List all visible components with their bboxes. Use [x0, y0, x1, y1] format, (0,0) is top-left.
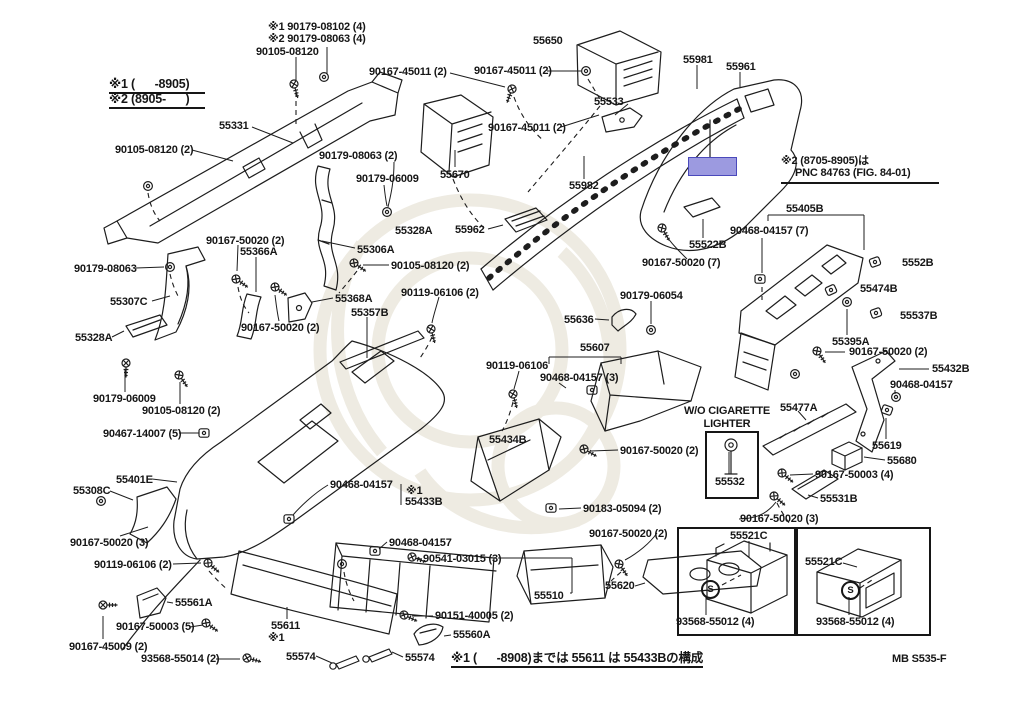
label-55607: 55607	[580, 342, 610, 354]
label-55510: 55510	[534, 590, 564, 602]
label-55619: 55619	[872, 440, 902, 452]
label-55474B: 55474B	[860, 283, 897, 295]
pnc-note: ※2 (8705-8905)は PNC 84763 (FIG. 84-01)	[781, 155, 939, 184]
label-55306A: 55306A	[357, 244, 394, 256]
label-55328A-a: 55328A	[395, 225, 432, 237]
legend-line2: ※2 (8905- )	[109, 92, 205, 109]
pnc-note-line1: ※2 (8705-8905)は	[781, 155, 939, 167]
label-55537B: 55537B	[900, 310, 937, 322]
label-90167-50020-2d: 90167-50020 (2)	[849, 346, 927, 358]
label-90167-50020-2c: 90167-50020 (2)	[620, 445, 698, 457]
label-90105-08120-2b: 90105-08120 (2)	[391, 260, 469, 272]
label-55611-ref1: ※1	[268, 632, 284, 644]
label-55401E: 55401E	[116, 474, 153, 486]
label-90467-14007-5: 90467-14007 (5)	[103, 428, 181, 440]
label-93568-55014-2: 93568-55014 (2)	[141, 653, 219, 665]
label-55477A: 55477A	[780, 402, 817, 414]
label-55331: 55331	[219, 120, 249, 132]
s-mark-right: S	[841, 581, 860, 600]
label-55680: 55680	[887, 455, 917, 467]
label-55432B: 55432B	[932, 363, 969, 375]
label-55574-a: 55574	[286, 651, 316, 663]
label-90167-50020-3b: 90167-50020 (3)	[70, 537, 148, 549]
label-90179-08063-2: 90179-08063 (2)	[319, 150, 397, 162]
label-90179-06054: 90179-06054	[620, 290, 683, 302]
parts-diagram: S S ※1 90179-08102 (4) ※2 90179-08063 (4…	[0, 0, 1024, 718]
label-55962: 55962	[455, 224, 485, 236]
label-90167-50020-7: 90167-50020 (7)	[642, 257, 720, 269]
label-55307C: 55307C	[110, 296, 147, 308]
note-top-line2: ※2 90179-08063 (4)	[268, 33, 366, 45]
wo-cigarette-lighter-box	[705, 431, 759, 499]
label-90105-08120-2a: 90105-08120 (2)	[115, 144, 193, 156]
label-90167-45011-c: 90167-45011 (2)	[488, 122, 566, 134]
label-55521C-b: 55521C	[805, 556, 842, 568]
label-90183-05094-2: 90183-05094 (2)	[583, 503, 661, 515]
label-90167-45011-a: 90167-45011 (2)	[369, 66, 447, 78]
label-55560A: 55560A	[453, 629, 490, 641]
note-top-line1: ※1 90179-08102 (4)	[268, 21, 366, 33]
wo-line1: W/O CIGARETTE	[679, 405, 775, 418]
label-55636: 55636	[564, 314, 594, 326]
label-90119-06106-2a: 90119-06106 (2)	[401, 287, 479, 299]
label-90167-45011-b: 90167-45011 (2)	[474, 65, 552, 77]
label-55357B: 55357B	[351, 307, 388, 319]
label-55328A-b: 55328A	[75, 332, 112, 344]
label-90167-50003-5: 90167-50003 (5)	[116, 621, 194, 633]
selected-part-highlight[interactable]	[688, 157, 737, 176]
wo-cigarette-lighter-title: W/O CIGARETTE LIGHTER	[679, 405, 775, 430]
label-55982: 55982	[569, 180, 599, 192]
label-55650: 55650	[533, 35, 563, 47]
label-55531B: 55531B	[820, 493, 857, 505]
label-55308C: 55308C	[73, 485, 110, 497]
label-90179-06009-a: 90179-06009	[356, 173, 419, 185]
pnc-note-line2: PNC 84763 (FIG. 84-01)	[781, 167, 939, 179]
label-55532: 55532	[715, 476, 745, 488]
label-55522B: 55522B	[689, 239, 726, 251]
label-90167-50003-4: 90167-50003 (4)	[815, 469, 893, 481]
label-93568-55012-4a: 93568-55012 (4)	[676, 616, 754, 628]
s-mark-left: S	[701, 580, 720, 599]
label-90167-50020-2b: 90167-50020 (2)	[241, 322, 319, 334]
label-90105-08120-2c: 90105-08120 (2)	[142, 405, 220, 417]
label-55611: 55611	[271, 620, 300, 632]
label-55368A: 55368A	[335, 293, 372, 305]
label-55670: 55670	[440, 169, 470, 181]
label-55434B: 55434B	[489, 434, 526, 446]
label-90179-08063: 90179-08063	[74, 263, 137, 275]
label-5552B: 5552B	[902, 257, 933, 269]
label-55533: 55533	[594, 96, 624, 108]
label-55961: 55961	[726, 61, 756, 73]
label-90179-06009-b: 90179-06009	[93, 393, 156, 405]
label-90167-45009-2: 90167-45009 (2)	[69, 641, 147, 653]
label-55521C-a: 55521C	[730, 530, 767, 542]
label-90468-04157-a: 90468-04157	[890, 379, 953, 391]
label-90541-03015-3: 90541-03015 (3)	[423, 553, 501, 565]
label-90167-50020-3a: 90167-50020 (3)	[740, 513, 818, 525]
label-90119-06106-2b: 90119-06106 (2)	[94, 559, 172, 571]
label-55366A: 55366A	[240, 246, 277, 258]
label-90468-04157-7: 90468-04157 (7)	[730, 225, 808, 237]
note-bottom: ※1 ( -8908)までは 55611 は 55433Bの構成	[451, 651, 703, 668]
label-90468-04157-3: 90468-04157 (3)	[540, 372, 618, 384]
label-90105-08120: 90105-08120	[256, 46, 319, 58]
label-55981: 55981	[683, 54, 713, 66]
label-55561A: 55561A	[175, 597, 212, 609]
label-90151-40005-2: 90151-40005 (2)	[435, 610, 513, 622]
label-90167-50020-2e: 90167-50020 (2)	[589, 528, 667, 540]
label-90468-04157-b: 90468-04157	[330, 479, 393, 491]
wo-line2: LIGHTER	[679, 418, 775, 431]
label-90119-06106: 90119-06106	[486, 360, 548, 372]
label-55433B: 55433B	[405, 496, 442, 508]
label-90468-04157-c: 90468-04157	[389, 537, 452, 549]
label-55405B: 55405B	[786, 203, 823, 215]
label-55574-b: 55574	[405, 652, 435, 664]
label-55620: 55620	[605, 580, 635, 592]
label-93568-55012-4b: 93568-55012 (4)	[816, 616, 894, 628]
figure-code: MB S535-F	[892, 653, 946, 665]
